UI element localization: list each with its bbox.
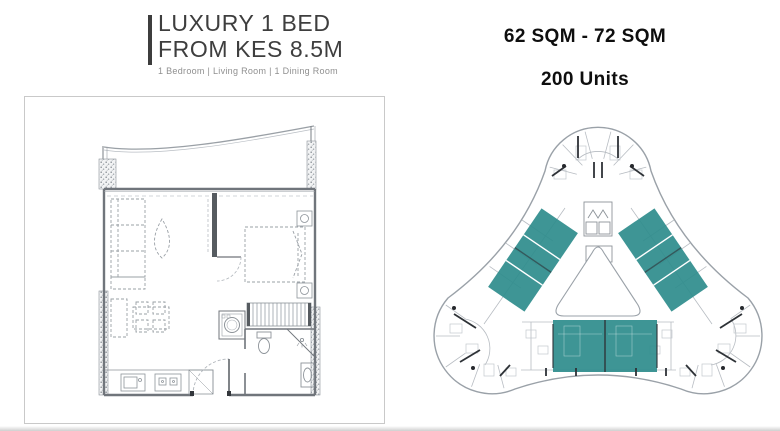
units-count: 200 Units: [420, 69, 750, 91]
accent-bar: [148, 15, 152, 65]
title-line-1: LUXURY 1 BED: [158, 10, 343, 36]
washer: [219, 311, 245, 339]
building-floorplate: [426, 118, 770, 418]
room-summary: 1 Bedroom | Living Room | 1 Dining Room: [158, 66, 343, 76]
area-range: 62 SQM - 72 SQM: [420, 26, 750, 48]
bottom-edge-shadow: [0, 426, 780, 431]
nightstands: [297, 211, 312, 298]
floorplan-panel: [24, 96, 385, 424]
balcony: [103, 126, 315, 189]
bathroom: [245, 329, 315, 395]
kitchen: [105, 370, 213, 394]
stats-block: 62 SQM - 72 SQM 200 Units: [420, 26, 750, 91]
bed: [245, 227, 305, 282]
structural-columns: [99, 141, 320, 395]
apartment-floorplan: [95, 111, 323, 403]
dining-set: [111, 299, 169, 337]
title-block: LUXURY 1 BED FROM KES 8.5M 1 Bedroom | L…: [148, 10, 343, 76]
divider-wall: [208, 193, 241, 281]
highlight-band-bottom: [553, 320, 657, 372]
page-title: LUXURY 1 BED FROM KES 8.5M: [158, 10, 343, 62]
wardrobe: [247, 303, 311, 326]
plant: [154, 219, 169, 258]
sofa: [111, 199, 145, 289]
title-line-2: FROM KES 8.5M: [158, 36, 343, 62]
toilet: [257, 332, 271, 354]
outer-walls: [104, 189, 315, 395]
